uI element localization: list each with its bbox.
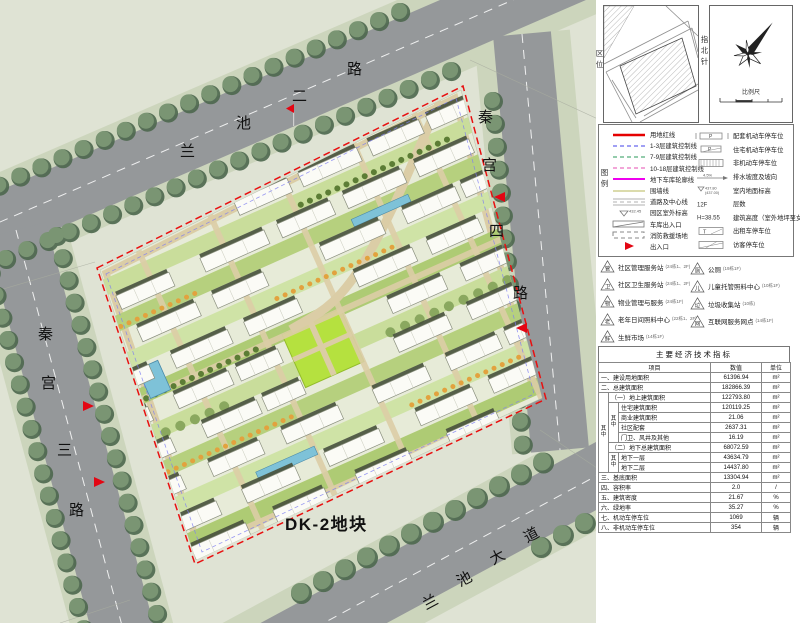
legend-symbol [695,240,729,250]
table-cell: 2.0 [711,483,762,493]
table-row: 七、机动车停车位1069辆 [599,513,791,523]
legend-item: 437.80(437.00)室内地面标高 [695,183,800,197]
legend-item-label: 访客停车位 [733,240,764,249]
svg-text:网: 网 [695,320,701,327]
table-row: 地下二层14437.80m² [599,463,791,473]
location-parcel [620,38,696,114]
table-cell: m² [762,413,791,423]
legend-symbol [612,186,646,196]
table-cell: （二）地下总建筑面积 [609,443,711,453]
legend-symbol [695,158,729,168]
legend-item: 围墙线 [612,185,704,196]
svg-text:管: 管 [605,265,611,273]
legend-item-label: 7-9层建筑控制线 [650,152,697,161]
north-arrow-box: 比例尺 [709,5,793,123]
svg-text:4.5%: 4.5% [703,172,713,177]
table-row: 商业建筑面积21.06m² [599,413,791,423]
legend-item-label: 道路及中心线 [650,197,688,206]
legend-item: 4.5%排水坡度及坡向 [695,170,800,184]
legend-item-label: 地下车库轮廓线 [650,175,694,184]
legend-symbol: P [695,131,729,141]
facility-label: 生鲜市场 [618,332,644,342]
table-header-cell: 单位 [762,363,791,373]
legend-item-label: 建筑高度（室外地坪至女儿墙） [733,213,800,222]
table-cell: 一、建设用地面积 [599,373,711,383]
legend-symbol: H=38.55 [695,212,729,222]
facility-label: 儿童托管照料中心 [708,281,760,291]
legend-symbol [612,163,646,173]
facility-label: 公厕 [708,264,721,274]
table-cell: m² [762,373,791,383]
table-cell: 14437.80 [711,463,762,473]
svg-text:鲜: 鲜 [605,335,611,343]
legend-item: H=38.55建筑高度（室外地坪至女儿墙） [695,211,800,225]
legend-symbol: T [695,226,729,236]
legend-symbol: P [695,144,729,154]
facility-triangle-icon: 管 [600,260,615,273]
facility-triangle-icon: 卫 [600,278,615,291]
site-plan-drawing: 兰池二路 秦宫四路 秦宫三路 兰池大道 DK-2地块 [0,0,600,623]
legend-symbol [612,152,646,162]
svg-text:厕: 厕 [695,268,701,275]
table-cell: 35.27 [711,503,762,513]
legend-item: 7-9层建筑控制线 [612,151,704,162]
table-cell: m² [762,403,791,413]
facility-note: (24栋1F) [666,299,684,305]
table-row: 三、基底面积13304.94m² [599,473,791,483]
table-row: 其中住宅建筑面积120119.25m² [599,403,791,413]
legend-item: 车库出入口 [612,219,704,230]
svg-text:物: 物 [605,300,611,308]
table-cell: 地下一层 [619,453,711,463]
table-cell: 六、绿地率 [599,503,711,513]
table-cell: % [762,493,791,503]
table-cell: 其中 [609,453,619,473]
legend-item-label: 消防救援场地 [650,231,688,240]
table-cell: % [762,503,791,513]
facility-label: 社区管理服务站 [618,262,664,272]
table-cell: 五、建筑密度 [599,493,711,503]
svg-text:H=38.55: H=38.55 [697,216,721,222]
table-cell: 16.19 [711,433,762,443]
legend-item: 访客停车位 [695,238,800,252]
table-cell: 辆 [762,513,791,523]
table-cell: 八、非机动车停车位 [599,523,711,533]
facility-note: (24栋1、2F) [666,264,691,270]
table-row: 二、总建筑面积182866.39m² [599,383,791,393]
legend-item: 12F层数 [695,197,800,211]
table-row: 其中（一）地上建筑面积122793.80m² [599,393,791,403]
scale-bar [720,98,782,102]
table-cell: 门卫、风井及其他 [619,433,711,443]
legend-item-label: 车库出入口 [650,220,681,229]
facility-triangle-icon: 老 [600,313,615,326]
indicators-table: 主要经济技术指标 项目数值单位一、建设用地面积61396.94m²二、总建筑面积… [598,346,790,533]
legend-symbol [612,241,646,251]
facility-item: 卫社区卫生服务站(24栋1、2F) [600,276,697,294]
table-header-cell: 数值 [711,363,762,373]
table-cell: 地下二层 [619,463,711,473]
legend-item: 道路及中心线 [612,196,704,207]
legend-symbol [612,141,646,151]
legend-item-label: 出租车停车位 [733,226,771,235]
location-map [603,5,699,123]
facility-label: 互联网服务网点 [708,316,754,326]
table-row: 四、容积率2.0/ [599,483,791,493]
table-cell: 七、机动车停车位 [599,513,711,523]
table-cell: 122793.80 [711,393,762,403]
legend-item-label: 用地红线 [650,130,675,139]
table-cell: 商业建筑面积 [619,413,711,423]
table-cell: 120119.25 [711,403,762,413]
legend-item-label: 出入口 [650,242,669,251]
legend-item: 432.45园区室外标高 [612,207,704,218]
legend-symbol [612,130,646,140]
legend-item: T出租车停车位 [695,224,800,238]
legend-item-label: 1-3层建筑控制线 [650,141,697,150]
legend-symbol: 4.5% [695,172,729,182]
legend-symbol: 437.80(437.00) [695,185,729,195]
table-cell: m² [762,463,791,473]
table-cell: m² [762,423,791,433]
legend-symbol: 432.45 [612,208,646,218]
svg-text:卫: 卫 [605,283,611,290]
facility-item: 管社区管理服务站(24栋1、2F) [600,258,697,276]
table-row: 五、建筑密度21.67% [599,493,791,503]
legend-symbol: 12F [695,199,729,209]
legend-item-label: 室内地面标高 [733,186,771,195]
table-cell: m² [762,443,791,453]
table-row: 门卫、风井及其他16.19m² [599,433,791,443]
facility-note: (10栋1F) [762,283,780,289]
table-cell: 68072.59 [711,443,762,453]
scale-label: 比例尺 [742,88,760,96]
facility-item: 厕公厕(19栋1F) [690,260,780,278]
table-cell: 三、基底面积 [599,473,711,483]
facility-label: 社区卫生服务站 [618,279,664,289]
table-cell: 辆 [762,523,791,533]
table-cell: 21.06 [711,413,762,423]
facility-triangle-icon: 网 [690,315,705,328]
north-arrow-label: 指北针 [700,34,709,67]
table-cell: （一）地上建筑面积 [609,393,711,403]
table-cell: 其中 [609,403,619,443]
masterplan-sheet: { "plan": { "block_label": "DK-2地块", "ro… [0,0,800,623]
table-row: 一、建设用地面积61396.94m² [599,373,791,383]
facility-triangle-icon: 儿 [690,280,705,293]
table-row: 项目数值单位 [599,363,791,373]
table-cell: 住宅建筑面积 [619,403,711,413]
facility-triangle-icon: 厕 [690,262,705,275]
facility-item: 鲜生鲜市场(14栋1F) [600,328,697,346]
indicators-table-title: 主要经济技术指标 [598,346,790,362]
table-cell: 2637.31 [711,423,762,433]
table-cell: m² [762,383,791,393]
legend-item-label: 配套机动车停车位 [733,131,783,140]
legend-item: 1-3层建筑控制线 [612,140,704,151]
table-cell: m² [762,393,791,403]
table-cell: m² [762,453,791,463]
legend-panel: 区位 指北针 [596,0,800,623]
facility-note: (14栋1F) [646,334,664,340]
table-row: 其中地下一层43634.79m² [599,453,791,463]
table-cell: / [762,483,791,493]
table-cell: 182866.39 [711,383,762,393]
legend-box: 图例 用地红线1-3层建筑控制线7-9层建筑控制线10-18层建筑控制线地下车库… [598,124,794,257]
table-cell: 二、总建筑面积 [599,383,711,393]
table-cell: 1069 [711,513,762,523]
legend-item-label: 园区室外标高 [650,208,688,217]
facility-item: 老老年日间照料中心(22栋1、2F) [600,311,697,329]
table-row: （二）地下总建筑面积68072.59m² [599,443,791,453]
facility-note: (14栋1F) [756,318,774,324]
table-cell: 四、容积率 [599,483,711,493]
svg-text:老: 老 [605,317,611,325]
legend-item: 出入口 [612,241,704,252]
svg-text:12F: 12F [697,202,708,208]
table-cell: m² [762,433,791,443]
facility-triangle-icon: 物 [600,295,615,308]
legend-symbol [612,197,646,207]
compass-rose [727,13,785,75]
table-cell: 其中 [599,393,609,473]
facility-item: 物物业管理与服务(24栋1F) [600,293,697,311]
facility-label: 老年日间照料中心 [618,314,670,324]
legend-item-label: 层数 [733,199,746,208]
table-cell: 13304.94 [711,473,762,483]
legend-title: 图例 [600,167,609,189]
facility-item: 网互联网服务网点(14栋1F) [690,313,780,331]
facility-item: 儿儿童托管照料中心(10栋1F) [690,278,780,296]
legend-item-label: 围墙线 [650,186,669,195]
svg-text:437.80: 437.80 [705,187,717,191]
table-row: 社区配套2637.31m² [599,423,791,433]
facility-legend-left: 管社区管理服务站(24栋1、2F)卫社区卫生服务站(24栋1、2F)物物业管理与… [600,258,697,346]
legend-symbol [612,174,646,184]
legend-item: P住宅机动车停车位 [695,143,800,157]
legend-item: 消防救援场地 [612,230,704,241]
table-cell: 43634.79 [711,453,762,463]
table-row: 八、非机动车停车位354辆 [599,523,791,533]
legend-item: P配套机动车停车位 [695,129,800,143]
legend-item: 10-18层建筑控制线 [612,163,704,174]
table-cell: 社区配套 [619,423,711,433]
legend-symbol [612,230,646,240]
legend-item-label: 排水坡度及坡向 [733,172,777,181]
legend-symbol [612,219,646,229]
svg-text:垃: 垃 [695,302,701,310]
facility-triangle-icon: 垃 [690,297,705,310]
table-cell: 61396.94 [711,373,762,383]
block-label: DK-2地块 [285,514,368,534]
facility-item: 垃垃圾收集站(10栋) [690,295,780,313]
facility-note: (24栋1、2F) [666,281,691,287]
table-cell: 354 [711,523,762,533]
table-cell: 21.67 [711,493,762,503]
legend-item: 用地红线 [612,129,704,140]
facility-triangle-icon: 鲜 [600,330,615,343]
facility-label: 垃圾收集站 [708,299,741,309]
legend-item: 非机动车停车位 [695,156,800,170]
facility-note: (10栋) [743,301,756,307]
legend-item: 地下车库轮廓线 [612,174,704,185]
facility-label: 物业管理与服务 [618,297,664,307]
facility-legend-right: 厕公厕(19栋1F)儿儿童托管照料中心(10栋1F)垃垃圾收集站(10栋)网互联… [690,260,780,330]
legend-item-label: 非机动车停车位 [733,158,777,167]
table-header-cell: 项目 [599,363,711,373]
table-cell: m² [762,473,791,483]
svg-text:(437.00): (437.00) [705,191,720,195]
svg-text:儿: 儿 [695,285,701,292]
facility-note: (19栋1F) [723,266,741,272]
svg-text:432.45: 432.45 [629,208,642,213]
legend-item-label: 住宅机动车停车位 [733,145,783,154]
table-row: 六、绿地率35.27% [599,503,791,513]
